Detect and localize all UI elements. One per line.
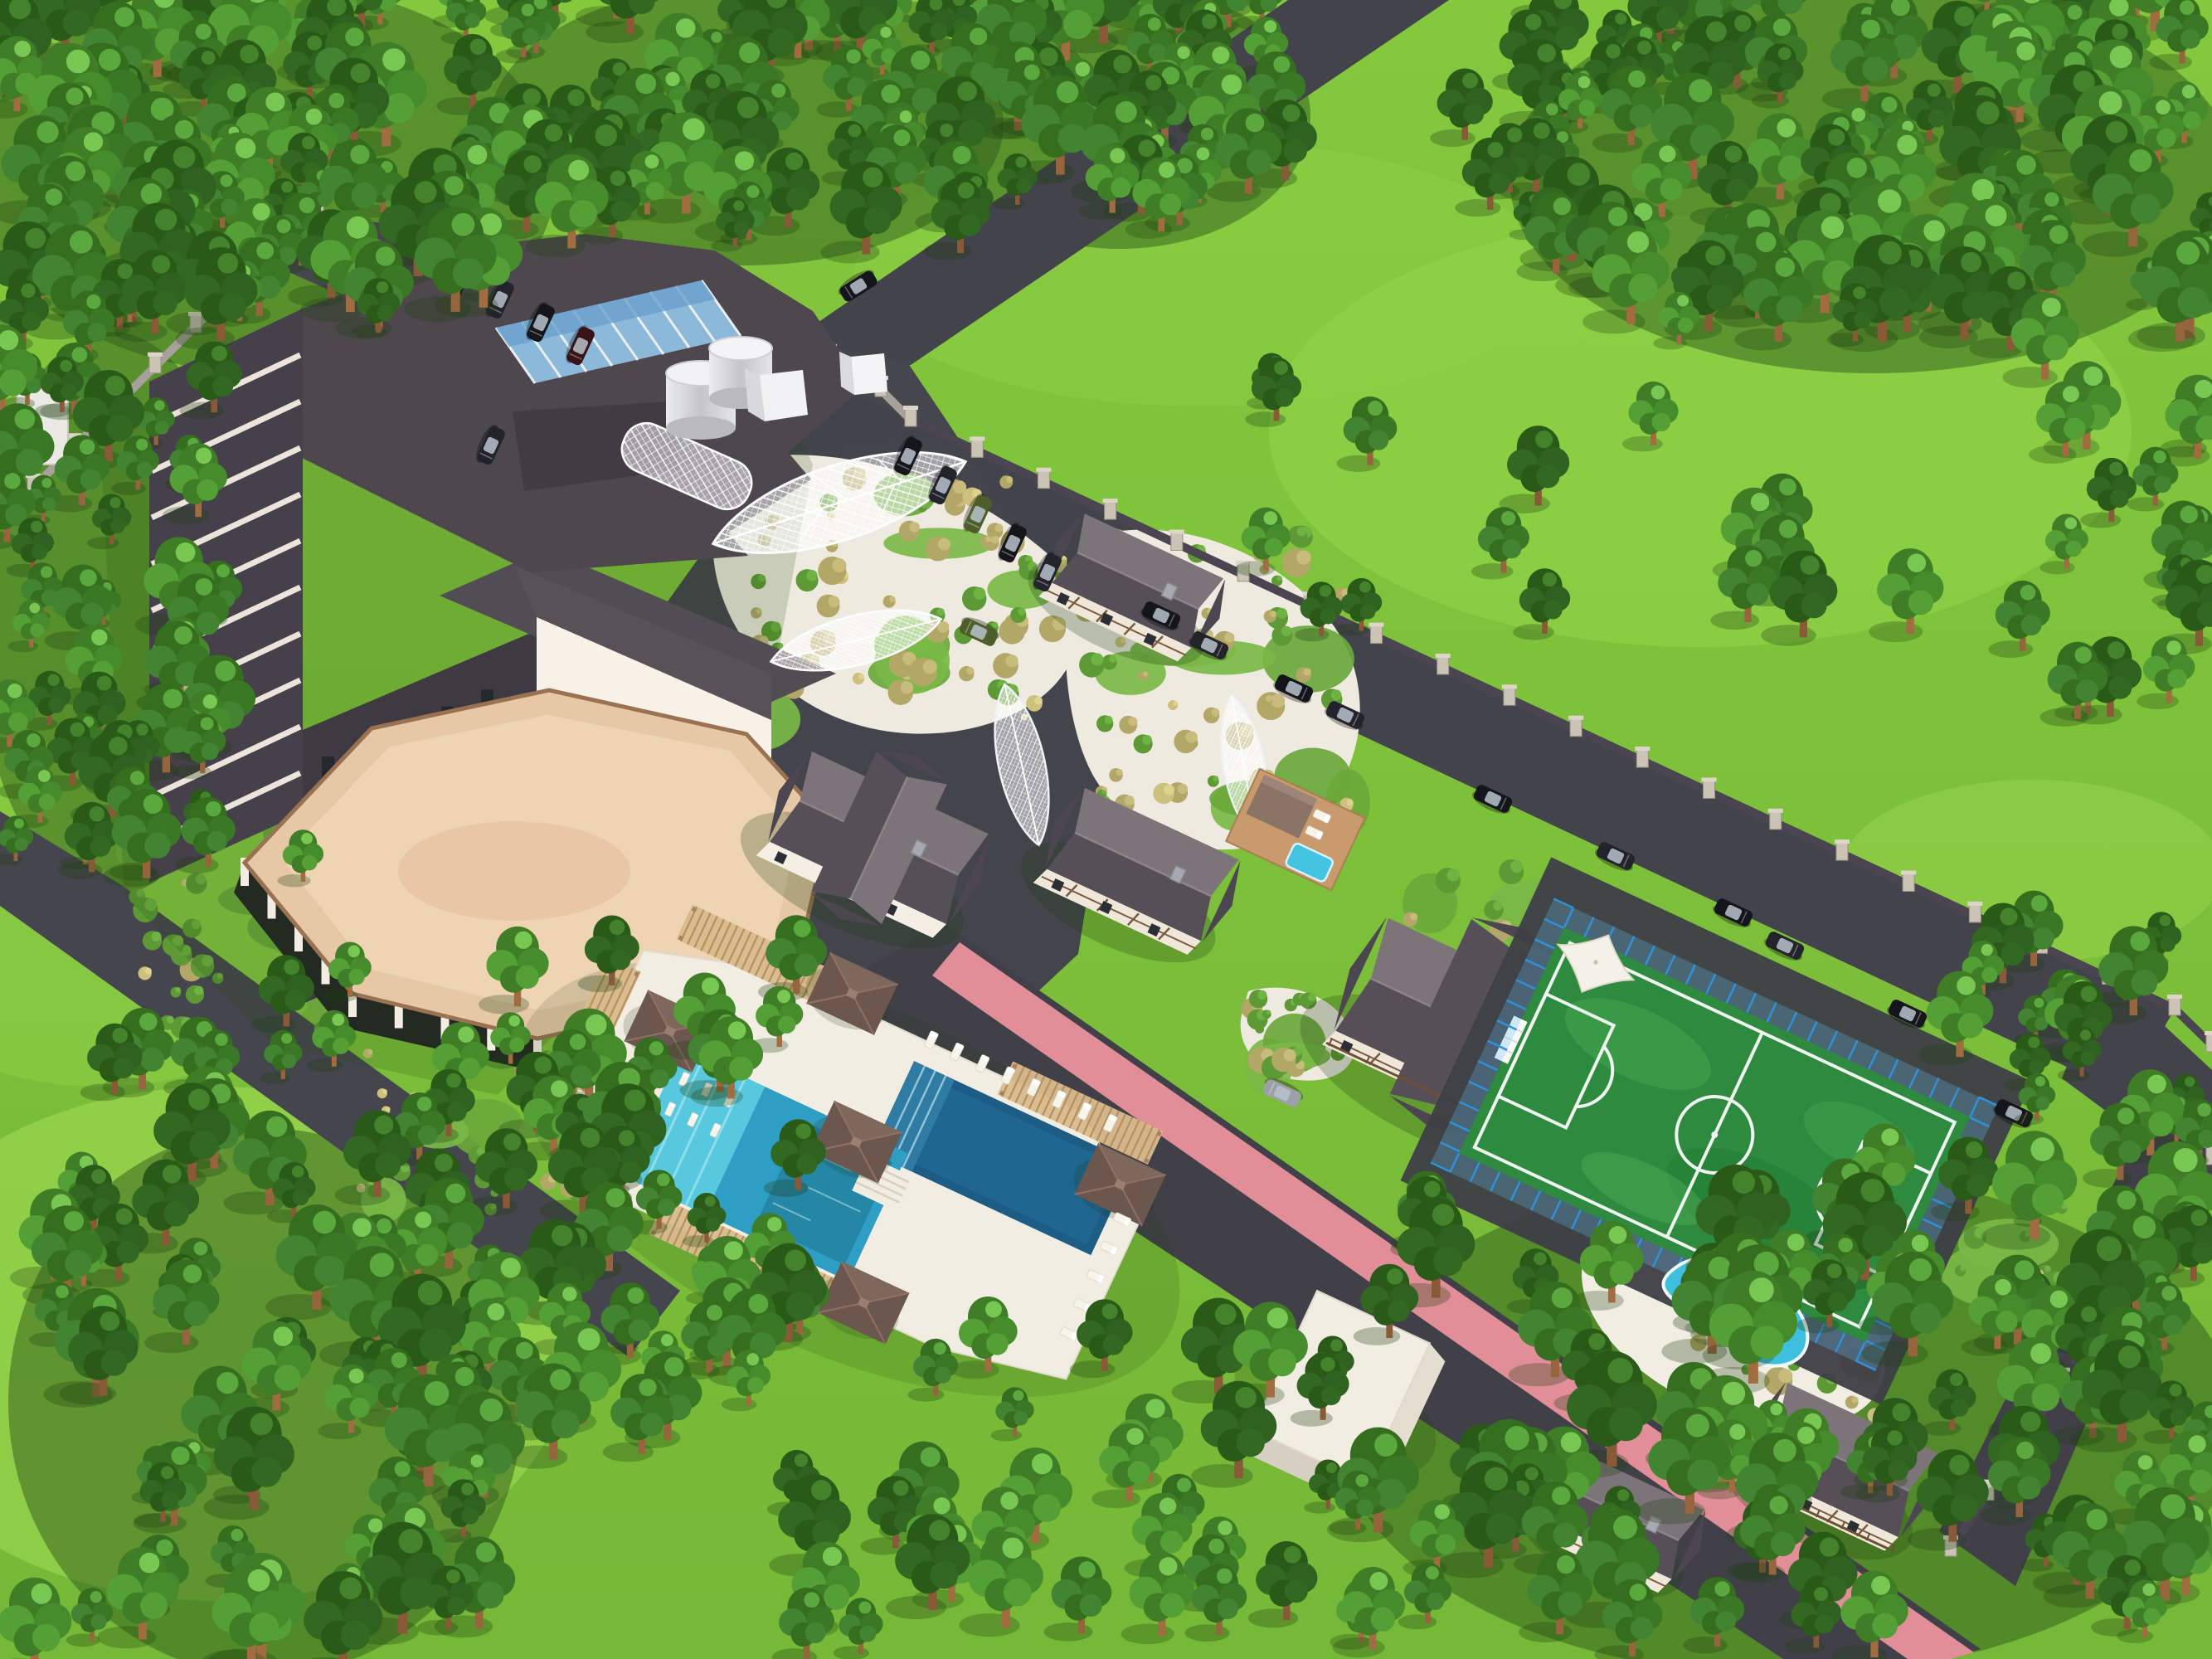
shrub (796, 569, 819, 591)
fence-pillar (905, 408, 916, 426)
shrub (1153, 783, 1174, 805)
shrub (1271, 1048, 1296, 1073)
shrub (1026, 695, 1043, 712)
shrub (926, 537, 950, 562)
shrub (1262, 1010, 1271, 1019)
fence-pillar (1636, 749, 1648, 767)
shrub (1109, 768, 1123, 782)
fence-pillar-cap (1635, 747, 1650, 751)
shrub (1435, 868, 1461, 893)
fence-pillar (1437, 656, 1449, 674)
shrub (1403, 912, 1417, 927)
shrub (1288, 526, 1308, 546)
shrub (999, 475, 1013, 489)
shrub (1168, 700, 1178, 710)
fence-pillar (2206, 1034, 2212, 1052)
shrub (1271, 625, 1292, 646)
fence-pillar (1969, 904, 1981, 922)
shrub (1203, 708, 1219, 723)
fence-pillar-cap (1901, 871, 1916, 875)
shrub (170, 987, 181, 998)
fence-pillar (1171, 532, 1183, 550)
fence-pillar (149, 355, 161, 373)
fence-pillar-cap (1768, 809, 1783, 813)
fence-pillar (1105, 501, 1116, 519)
fence-pillar-cap (1568, 716, 1583, 720)
shrub (1845, 1396, 1859, 1409)
fence-pillar-cap (970, 436, 984, 440)
shrub (1484, 900, 1503, 919)
fence-pillar (1903, 873, 1914, 892)
shrub (1174, 730, 1197, 753)
shrub (883, 596, 896, 608)
shrub (1259, 694, 1272, 708)
shrub (993, 653, 1018, 679)
fence-pillar-cap (1702, 777, 1717, 781)
service-cube (745, 368, 808, 421)
shrub (817, 595, 840, 618)
fence-pillar-cap (1103, 499, 1118, 503)
shrub (1249, 990, 1267, 1008)
shrub (1010, 607, 1026, 623)
scene-canvas (0, 0, 2212, 1659)
shrub (980, 536, 991, 547)
shrub (377, 1088, 387, 1098)
fence-pillar (2169, 997, 2180, 1015)
shrub (1079, 652, 1104, 677)
shrub (143, 931, 162, 950)
shrub (1955, 1265, 1966, 1277)
fence-pillar (1836, 842, 1848, 860)
shrub (139, 966, 152, 980)
shrub (1119, 716, 1137, 734)
shrub (818, 557, 846, 585)
shrub (853, 673, 864, 684)
fence-pillar (1770, 811, 1782, 829)
fence-pillar-cap (1502, 684, 1517, 688)
shrub (899, 521, 920, 542)
fence-pillar-cap (903, 406, 918, 410)
shrub (1499, 859, 1524, 884)
terrace-texture (398, 821, 630, 921)
fence-pillar (1570, 718, 1582, 737)
shrub (908, 658, 936, 686)
fence-pillar-cap (1835, 839, 1850, 844)
fence-pillar-cap (2205, 1031, 2212, 1035)
fence-pillar-cap (1967, 902, 1982, 906)
aerial-render (0, 0, 2212, 1659)
fence-pillar (971, 439, 983, 457)
shrub (1208, 776, 1219, 787)
shrub (1264, 610, 1276, 622)
shrub (1134, 734, 1153, 753)
shrub (1282, 548, 1311, 577)
fence-pillar (1504, 687, 1515, 705)
shrub (1138, 671, 1148, 681)
shrub (1096, 715, 1113, 732)
fence-pillar-cap (1036, 468, 1051, 472)
shrub (887, 679, 913, 705)
service-cube (839, 352, 887, 395)
fence-pillar (1704, 780, 1715, 798)
fence-pillar-cap (148, 353, 163, 357)
fence-pillar (1370, 625, 1382, 644)
shrub (186, 985, 204, 1004)
fence-pillar-cap (1169, 529, 1184, 533)
shrub (962, 586, 986, 611)
shrub (1296, 667, 1310, 682)
fence-pillar-cap (1436, 654, 1451, 658)
fence-pillar-cap (2167, 995, 2182, 999)
shrub (959, 666, 974, 681)
fence-pillar-cap (1369, 623, 1383, 627)
fence-pillar (1038, 470, 1049, 489)
